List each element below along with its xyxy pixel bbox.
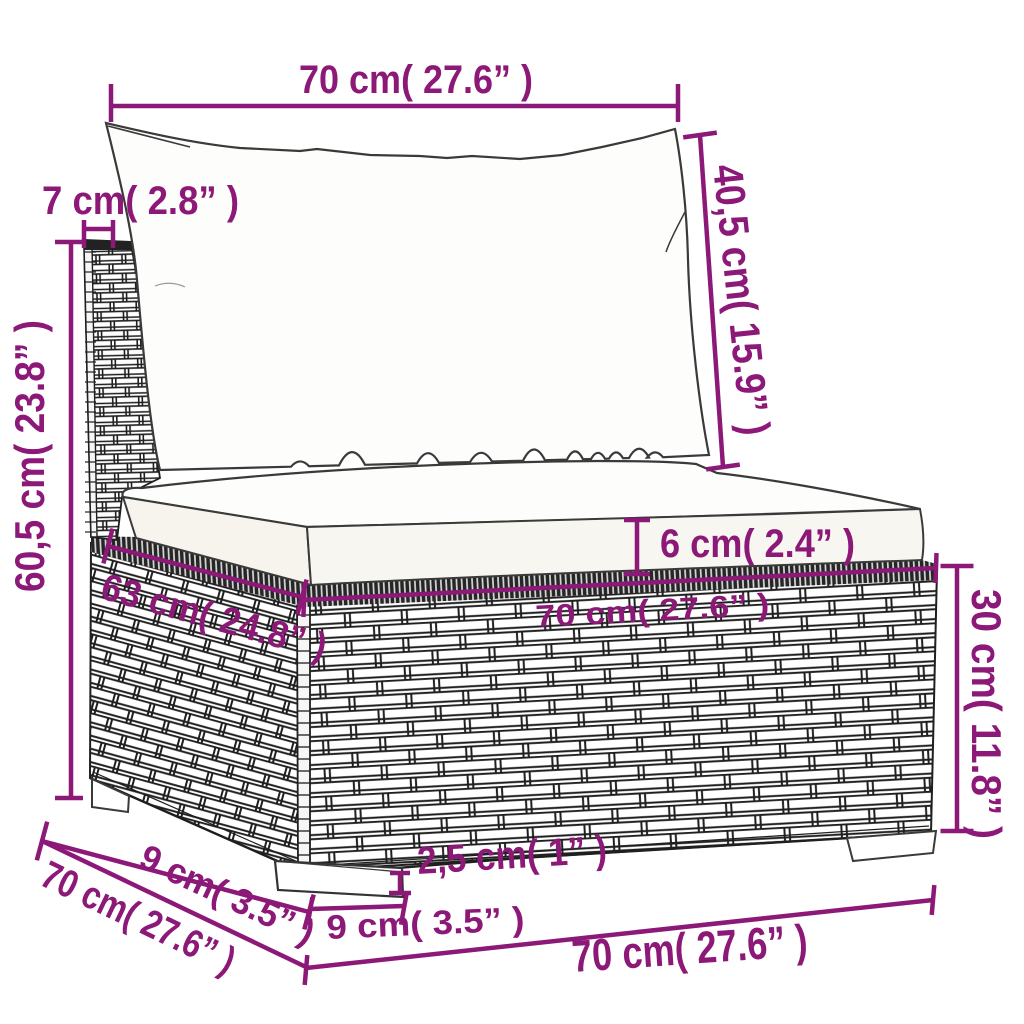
svg-text:40,5 cm( 15.9” ): 40,5 cm( 15.9” ) — [704, 162, 779, 437]
svg-text:70 cm( 27.6” ): 70 cm( 27.6” ) — [299, 58, 533, 102]
svg-text:70 cm( 27.6” ): 70 cm( 27.6” ) — [570, 915, 809, 982]
svg-text:9 cm( 3.5” ): 9 cm( 3.5” ) — [326, 900, 525, 947]
svg-text:6 cm( 2.4” ): 6 cm( 2.4” ) — [660, 522, 855, 566]
svg-text:30 cm( 11.8” ): 30 cm( 11.8” ) — [963, 589, 1010, 839]
svg-text:7 cm( 2.8” ): 7 cm( 2.8” ) — [42, 179, 239, 223]
svg-text:60,5 cm( 23.8” ): 60,5 cm( 23.8” ) — [6, 320, 53, 592]
